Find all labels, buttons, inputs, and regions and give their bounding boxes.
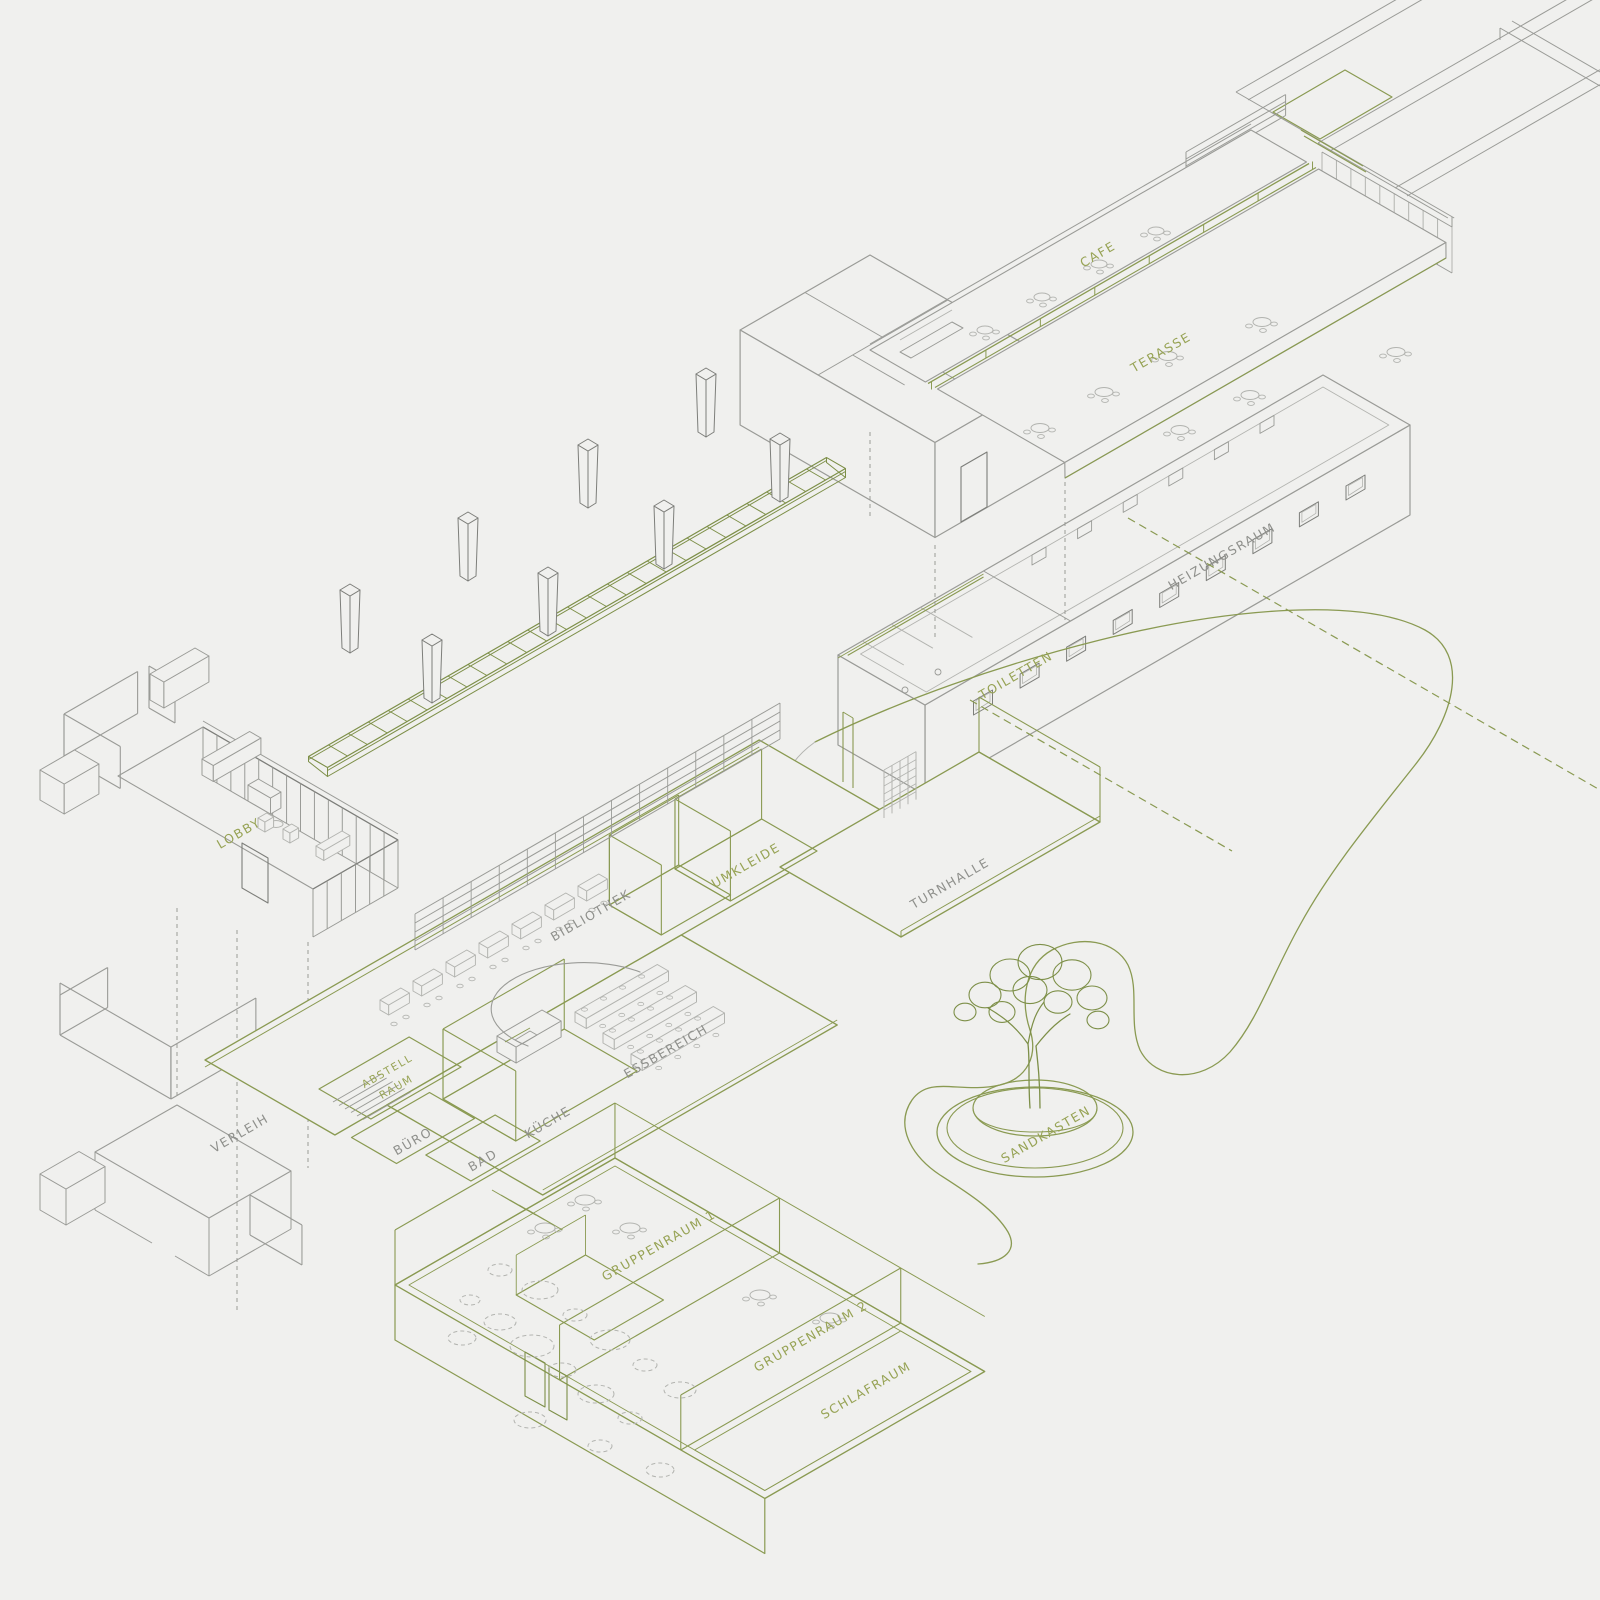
axonometric-drawing-canvas: CAFE TERASSE HEIZUNGSRAUM TOILETTEN LOBB…: [0, 0, 1600, 1600]
building-geometry: [40, 0, 1600, 1553]
room-label-verleih: VERLEIH: [208, 1111, 271, 1156]
exploded-axonometric-diagram: CAFE TERASSE HEIZUNGSRAUM TOILETTEN LOBB…: [0, 0, 1600, 1600]
